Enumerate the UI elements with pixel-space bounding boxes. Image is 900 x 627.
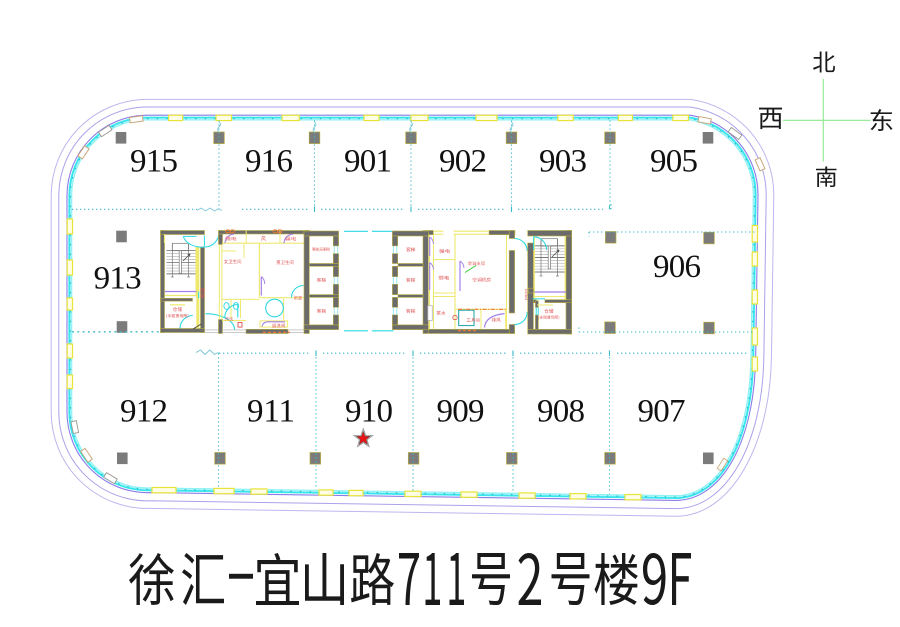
svg-text:908: 908 [537, 394, 585, 430]
svg-text:910: 910 [345, 394, 393, 430]
svg-text:911: 911 [247, 394, 295, 430]
svg-text:913: 913 [94, 261, 142, 297]
svg-text:907: 907 [638, 394, 686, 430]
svg-text:905: 905 [650, 144, 698, 180]
svg-text:902: 902 [439, 144, 487, 180]
svg-text:906: 906 [653, 249, 701, 285]
svg-text:912: 912 [120, 394, 168, 430]
svg-text:916: 916 [245, 144, 293, 180]
svg-text:909: 909 [437, 394, 485, 430]
svg-text:915: 915 [130, 144, 178, 180]
svg-text:901: 901 [344, 144, 392, 180]
svg-text:903: 903 [539, 144, 587, 180]
